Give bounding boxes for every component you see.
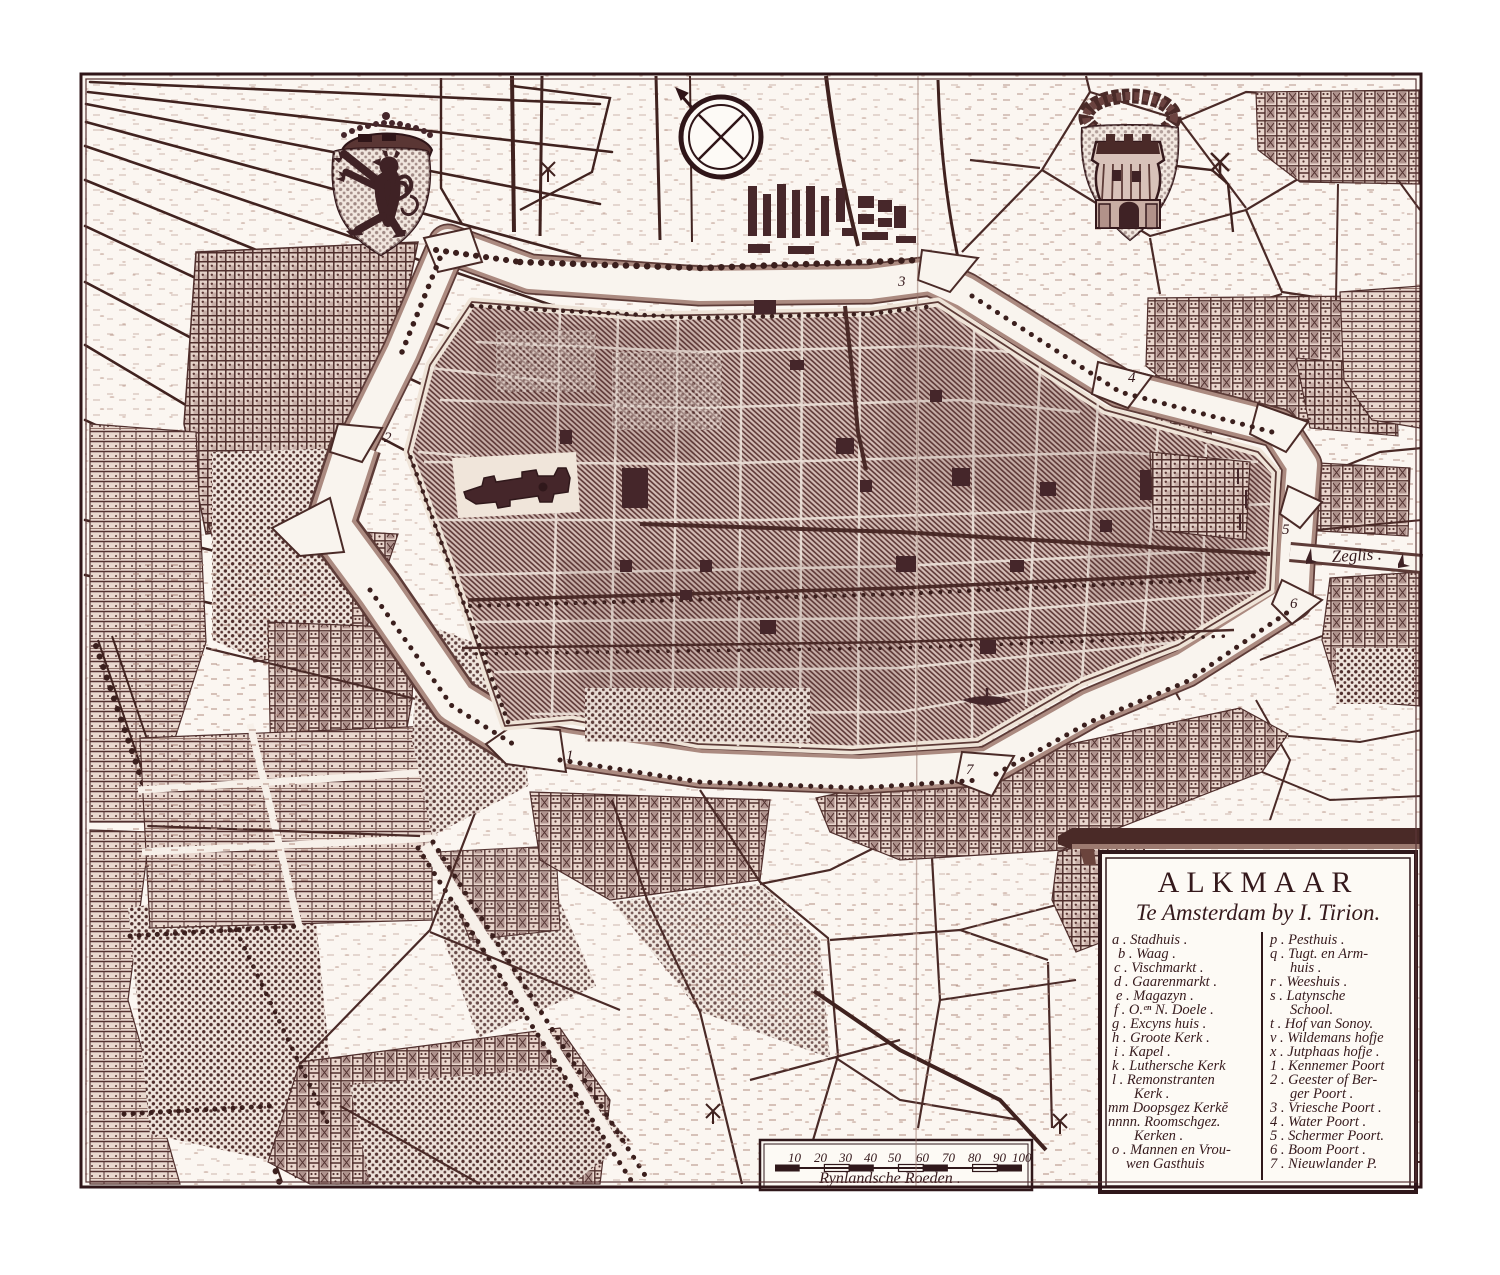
svg-text:3: 3 xyxy=(897,274,906,290)
svg-text:wen Gasthuis: wen Gasthuis xyxy=(1126,1156,1205,1172)
svg-text:Te Amsterdam by I. Tirion.: Te Amsterdam by I. Tirion. xyxy=(1136,900,1381,925)
svg-text:1: 1 xyxy=(566,748,574,764)
svg-text:4: 4 xyxy=(1128,370,1136,386)
svg-text:5: 5 xyxy=(1282,522,1290,538)
svg-text:Rynlandsche Roeden .: Rynlandsche Roeden . xyxy=(818,1170,960,1187)
svg-text:Zeglis .: Zeglis . xyxy=(1331,544,1382,566)
svg-text:7 . Nieuwlander P.: 7 . Nieuwlander P. xyxy=(1270,1156,1377,1172)
svg-text:ALKMAAR: ALKMAAR xyxy=(1158,866,1359,899)
svg-text:2: 2 xyxy=(384,430,392,446)
svg-text:6: 6 xyxy=(1290,596,1298,612)
